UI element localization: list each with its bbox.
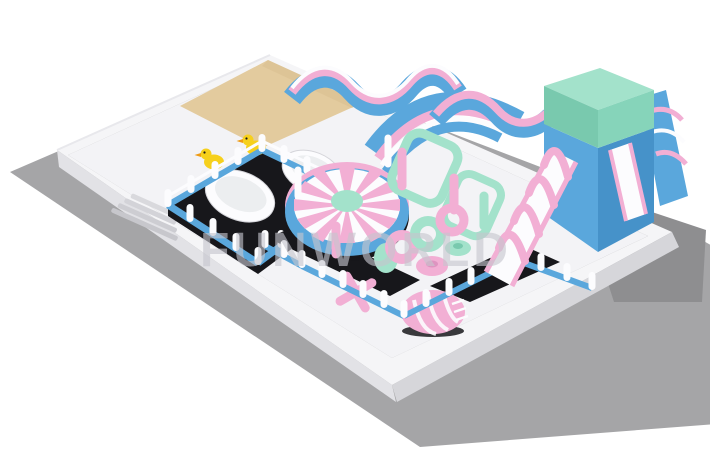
watermark-text: FUNWORLD	[200, 224, 512, 277]
inflatable-park-render: FUNWORLD	[0, 0, 710, 473]
product-render-stage: FUNWORLD	[0, 0, 710, 473]
